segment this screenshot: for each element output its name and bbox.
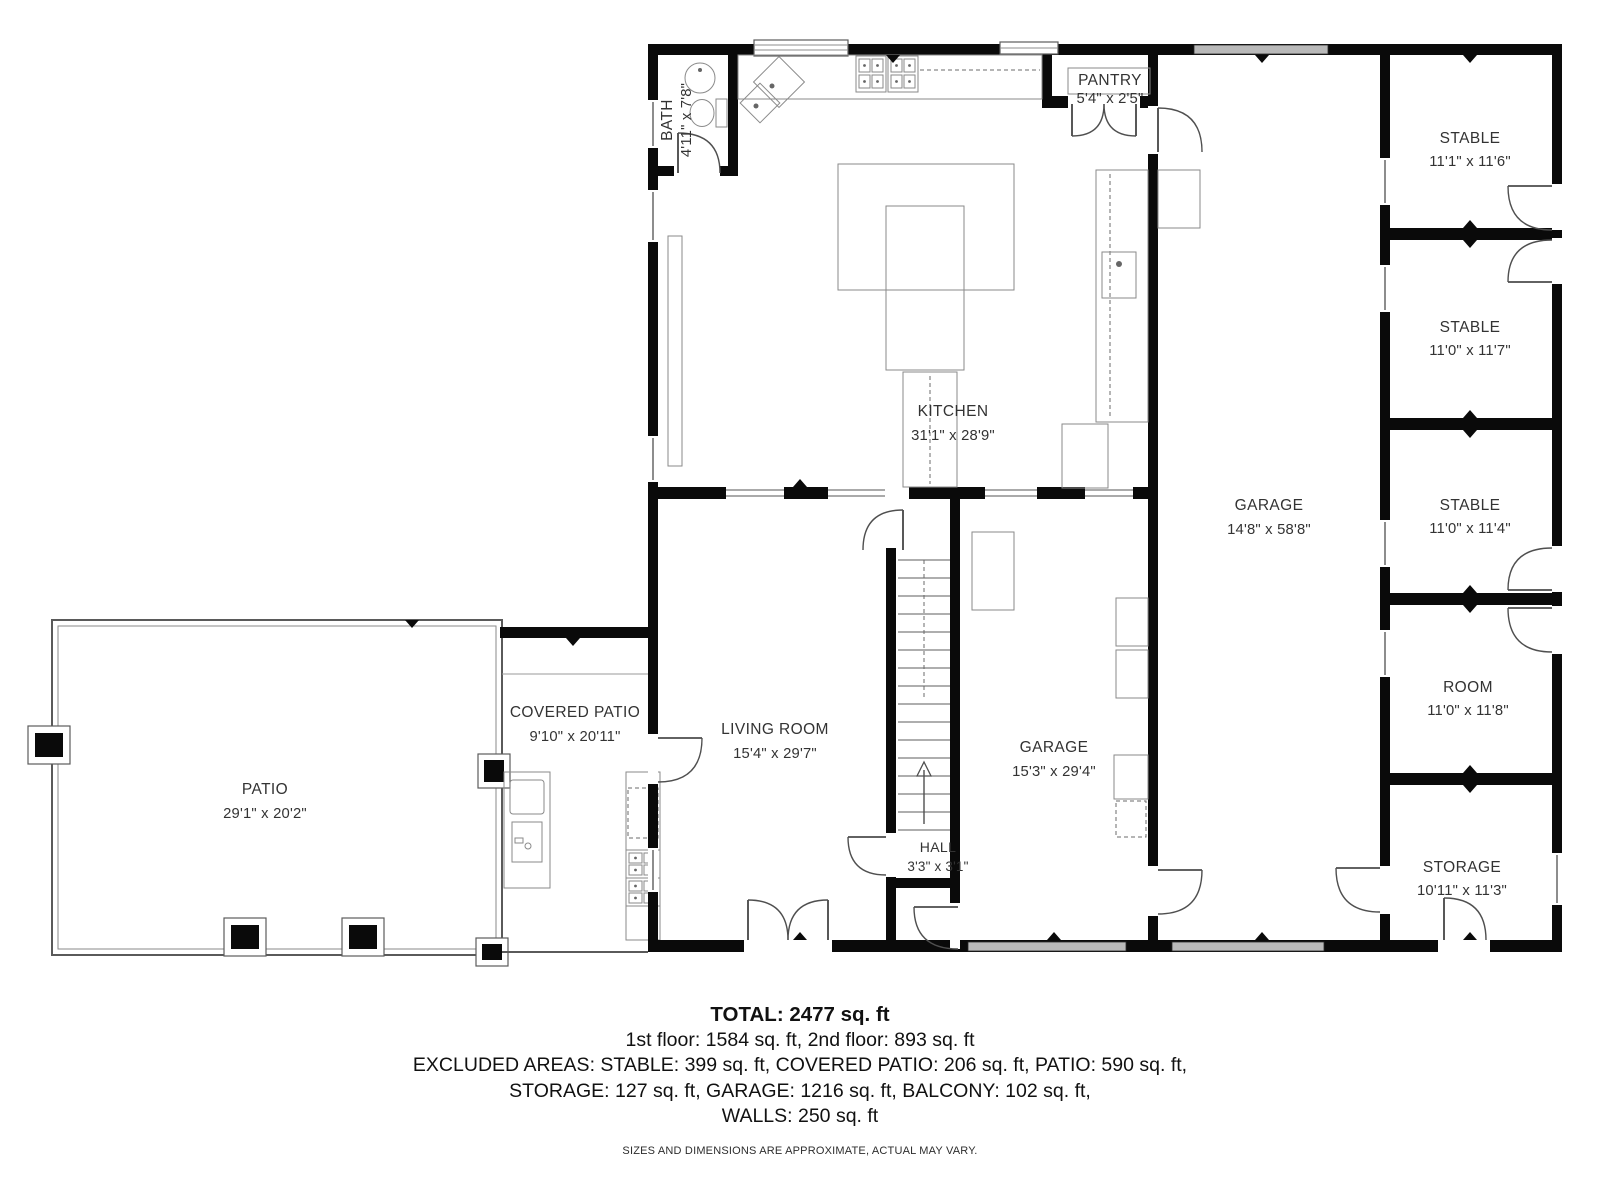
window-kitchen-top	[754, 40, 848, 56]
kitchen-island	[838, 164, 1014, 290]
stove	[856, 56, 918, 92]
room-dims-bath: 4'11" x 7'8"	[679, 83, 695, 157]
room-labels: BATH 4'11" x 7'8" PANTRY 5'4" x 2'5" KIT…	[223, 72, 1511, 899]
door-pantry-right	[1104, 104, 1136, 136]
garage2-unit-dashed	[1116, 801, 1146, 837]
window-kitchen-left	[648, 190, 658, 242]
window-stable3	[1380, 520, 1390, 567]
door-hall-living	[848, 837, 886, 875]
kitchen-counter-right	[1096, 170, 1148, 422]
room-label-stable-1: STABLE	[1440, 130, 1501, 147]
room-dims-garage-2: 15'3" x 29'4"	[1012, 764, 1096, 780]
window-kitchen-top-small	[1000, 42, 1058, 54]
window-kitchen-left-lower	[648, 436, 658, 482]
summary-excluded-2: STORAGE: 127 sq. ft, GARAGE: 1216 sq. ft…	[0, 1079, 1600, 1105]
stair-direction-arrow	[917, 762, 931, 824]
door-stable1	[1508, 186, 1552, 230]
summary-floors: 1st floor: 1584 sq. ft, 2nd floor: 893 s…	[0, 1028, 1600, 1054]
room-dims-stable-3: 11'0" x 11'4"	[1429, 521, 1511, 537]
window-room	[1380, 630, 1390, 677]
kitchen-fixtures	[668, 55, 1150, 488]
garage-shelf-top	[1158, 170, 1200, 228]
door-storage-exterior	[1444, 898, 1486, 940]
door-garage2-garage	[1158, 870, 1202, 914]
garage2-unit	[1114, 755, 1148, 799]
summary-disclaimer: SIZES AND DIMENSIONS ARE APPROXIMATE, AC…	[0, 1139, 1600, 1165]
window-bath	[648, 100, 658, 148]
room-dims-garage-main: 14'8" x 58'8"	[1227, 522, 1311, 538]
floorplan-page: BATH 4'11" x 7'8" PANTRY 5'4" x 2'5" KIT…	[0, 0, 1600, 1200]
door-living-patio	[658, 738, 702, 782]
garage-fixtures	[972, 170, 1200, 837]
garage2-shelf-1	[1116, 598, 1148, 646]
room-label-garage-2: GARAGE	[1020, 739, 1089, 756]
door-pantry-left	[1072, 104, 1104, 136]
garage2-cabinet	[972, 532, 1014, 610]
room-label-living-room: LIVING ROOM	[721, 721, 829, 738]
door-stable3	[1508, 548, 1552, 590]
summary-total: TOTAL: 2477 sq. ft	[0, 1002, 1600, 1028]
window-stable2	[1380, 265, 1390, 312]
room-dims-room: 11'0" x 11'8"	[1427, 703, 1509, 719]
summary-walls: WALLS: 250 sq. ft	[0, 1104, 1600, 1130]
room-label-hall: HALL	[920, 839, 957, 855]
door-stairs-top	[863, 510, 903, 550]
room-dims-kitchen: 31'1" x 28'9"	[911, 428, 995, 444]
room-dims-living-room: 15'4" x 29'7"	[733, 746, 817, 762]
room-label-stable-2: STABLE	[1440, 319, 1501, 336]
covered-patio-structure	[500, 627, 660, 952]
kitchen-island-extension	[886, 206, 964, 370]
door-french-right	[788, 900, 828, 940]
room-dims-hall: 3'3" x 3'1"	[907, 859, 968, 874]
kitchen-counter-left	[668, 236, 682, 466]
room-label-storage: STORAGE	[1423, 859, 1501, 876]
room-label-room: ROOM	[1443, 679, 1493, 696]
room-dims-stable-2: 11'0" x 11'7"	[1429, 343, 1511, 359]
summary-block: TOTAL: 2477 sq. ft 1st floor: 1584 sq. f…	[0, 1002, 1600, 1164]
window-storage	[1552, 853, 1562, 905]
room-label-patio: PATIO	[242, 781, 288, 798]
window-living-left	[648, 848, 658, 892]
room-label-garage-main: GARAGE	[1235, 497, 1304, 514]
room-label-covered-patio: COVERED PATIO	[510, 704, 640, 721]
door-room	[1508, 608, 1552, 652]
wall-openings	[648, 96, 1562, 952]
room-label-kitchen: KITCHEN	[918, 403, 989, 420]
door-garage-storage	[1336, 868, 1380, 912]
room-dims-patio: 29'1" x 20'2"	[223, 806, 307, 822]
room-label-bath: BATH	[659, 99, 676, 141]
room-dims-storage: 10'11" x 11'3"	[1417, 883, 1507, 899]
corner-sink	[740, 57, 804, 123]
toilet	[690, 99, 727, 127]
room-label-pantry: PANTRY	[1078, 72, 1142, 89]
garage2-shelf-2	[1116, 650, 1148, 698]
summary-excluded-1: EXCLUDED AREAS: STABLE: 399 sq. ft, COVE…	[0, 1053, 1600, 1079]
room-dims-stable-1: 11'1" x 11'6"	[1429, 154, 1511, 170]
door-stable2	[1508, 240, 1552, 282]
room-dims-covered-patio: 9'10" x 20'11"	[529, 729, 620, 745]
door-kitchen-garage	[1158, 108, 1202, 152]
fridge	[1062, 424, 1108, 488]
room-dims-pantry: 5'4" x 2'5"	[1077, 91, 1144, 107]
window-stable1	[1380, 158, 1390, 205]
room-label-stable-3: STABLE	[1440, 497, 1501, 514]
door-french-left	[748, 900, 788, 940]
